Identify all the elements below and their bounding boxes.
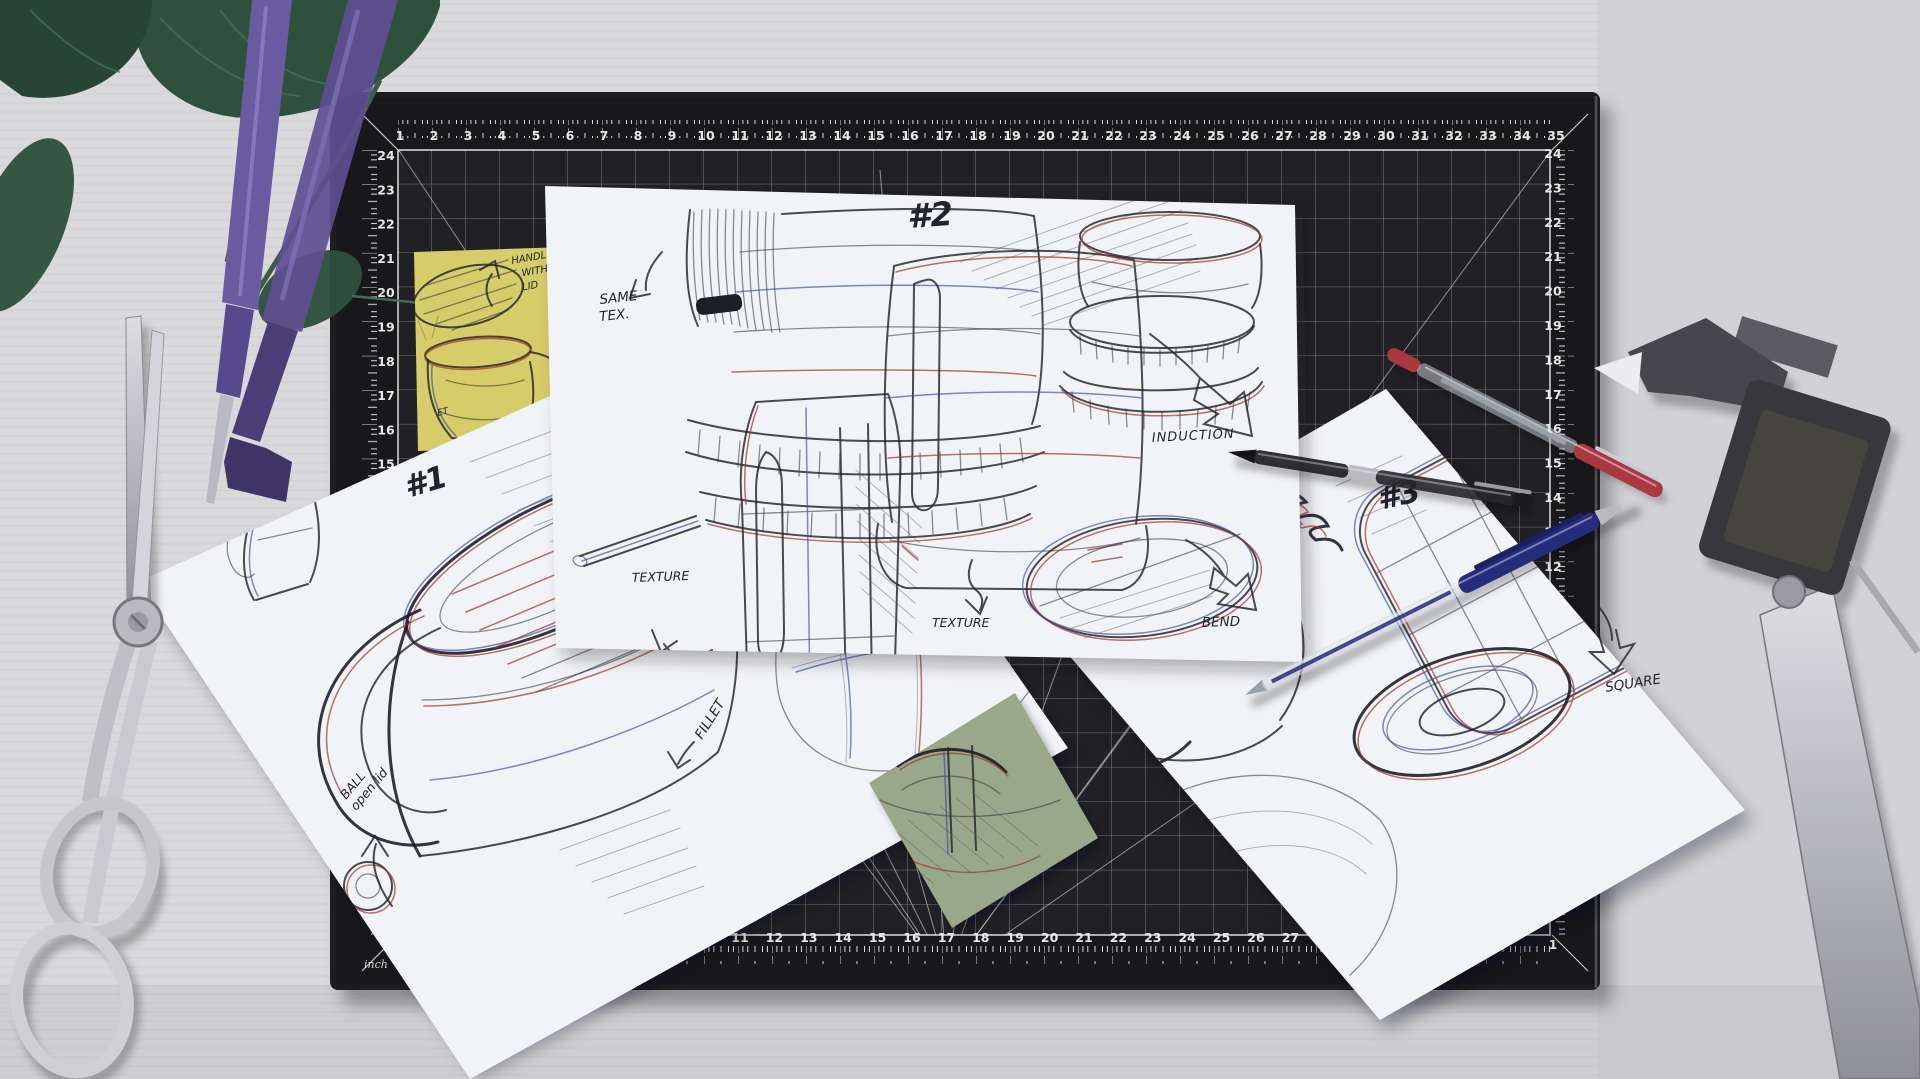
ruler-number: 18 — [1544, 352, 1561, 367]
ruler-number: 18 — [969, 128, 986, 143]
ruler-number: 5 — [532, 128, 541, 143]
ruler-number: 26 — [1247, 930, 1265, 945]
ruler-number: 29 — [1343, 128, 1360, 143]
annotation-texture-bottom: TEXTURE — [932, 615, 990, 630]
ruler-number: 16 — [901, 128, 919, 143]
ruler-number: 14 — [834, 930, 852, 945]
ruler-number: 24 — [377, 148, 395, 163]
ruler-number: 18 — [972, 930, 989, 945]
ruler-number: 16 — [377, 422, 395, 437]
ruler-number: 11 — [731, 128, 748, 143]
ruler-number: 24 — [1544, 146, 1562, 161]
ruler-number: 13 — [799, 128, 816, 143]
ruler-number: 25 — [1207, 128, 1224, 143]
mat-unit-label: inch — [364, 958, 388, 971]
ruler-number: 30 — [1377, 128, 1395, 143]
ruler-number: 35 — [1547, 128, 1564, 143]
ruler-number: 34 — [1513, 128, 1531, 143]
ruler-number: 22 — [377, 217, 394, 232]
annotation-texture-left: TEXTURE — [632, 568, 690, 585]
ruler-number: 2 — [430, 128, 439, 143]
ruler-number: 16 — [903, 930, 921, 945]
ruler-number: 19 — [1003, 128, 1020, 143]
ruler-number: 24 — [1173, 128, 1191, 143]
ruler-number: 26 — [1241, 128, 1259, 143]
annotation-bend: BEND — [1202, 614, 1241, 631]
ruler-number: 15 — [869, 930, 886, 945]
ruler-number: 21 — [1544, 249, 1561, 264]
ruler-number: 21 — [377, 251, 394, 266]
ruler-number: 24 — [1178, 930, 1196, 945]
ruler-number: 23 — [1144, 930, 1161, 945]
mat-ruler-top: 1234567891011121314151617181920212223242… — [396, 128, 1565, 143]
ruler-number: 19 — [1006, 930, 1023, 945]
ruler-number: 27 — [1275, 128, 1292, 143]
ruler-number: 17 — [377, 388, 394, 403]
ruler-number: 25 — [1213, 930, 1230, 945]
ruler-number: 22 — [1105, 128, 1122, 143]
ruler-number: 12 — [766, 930, 783, 945]
ruler-number: 19 — [1544, 318, 1561, 333]
ruler-number: 23 — [377, 182, 394, 197]
ruler-number: 21 — [1071, 128, 1088, 143]
ruler-number: 3 — [464, 128, 473, 143]
ruler-number: 31 — [1411, 128, 1428, 143]
ruler-number: 23 — [1544, 180, 1561, 195]
ruler-number: 23 — [1139, 128, 1156, 143]
ruler-number: 7 — [600, 128, 609, 143]
ruler-number: 21 — [1075, 930, 1092, 945]
ruler-number: 13 — [800, 930, 817, 945]
ruler-number: 28 — [1309, 128, 1326, 143]
caliper-thumb-wheel — [1773, 576, 1805, 608]
ruler-number: 1 — [1549, 937, 1558, 952]
ruler-number: 15 — [867, 128, 884, 143]
ruler-number: 14 — [1544, 490, 1562, 505]
ruler-number: 17 — [938, 930, 955, 945]
ruler-number: 17 — [935, 128, 952, 143]
ruler-number: 1 — [396, 128, 405, 143]
ruler-number: 4 — [498, 128, 507, 143]
ruler-number: 8 — [634, 128, 643, 143]
ruler-number: 9 — [668, 128, 677, 143]
ruler-number: 20 — [1041, 930, 1059, 945]
ruler-number: 6 — [566, 128, 575, 143]
ruler-number: 15 — [1544, 456, 1561, 471]
ruler-number: 12 — [765, 128, 782, 143]
ruler-number: 17 — [1544, 387, 1561, 402]
ruler-number: 32 — [1445, 128, 1462, 143]
annotation-tex: TEX. — [599, 306, 631, 325]
paper2-label: #2 — [906, 194, 955, 236]
ruler-number: 22 — [1110, 930, 1127, 945]
workspace-scene: 1234567891011121314151617181920212223242… — [0, 0, 1920, 1079]
ruler-number: 27 — [1282, 930, 1299, 945]
ruler-number: 19 — [377, 320, 394, 335]
ruler-number: 20 — [1544, 284, 1562, 299]
ruler-number: 22 — [1544, 215, 1561, 230]
ruler-number: 20 — [1037, 128, 1055, 143]
ruler-number: 10 — [697, 128, 715, 143]
ruler-number: 18 — [377, 354, 394, 369]
ruler-number: 33 — [1479, 128, 1496, 143]
design-workspace-photo: 1234567891011121314151617181920212223242… — [0, 0, 1920, 1079]
ruler-number: 14 — [833, 128, 851, 143]
